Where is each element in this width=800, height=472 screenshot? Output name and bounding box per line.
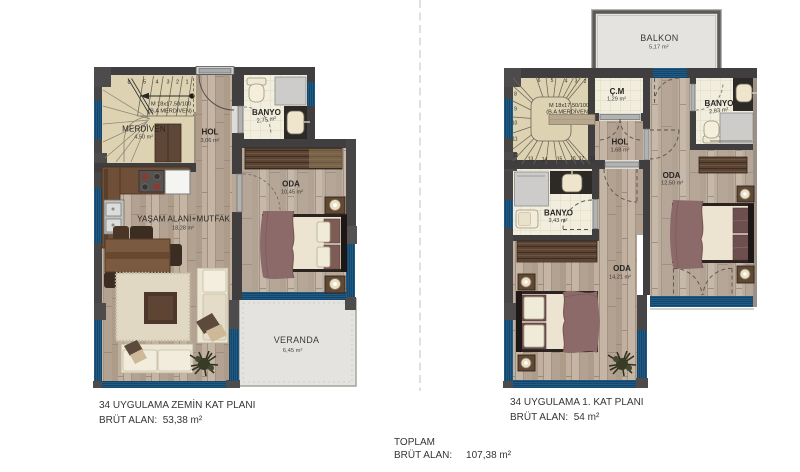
svg-text:HOL: HOL [612, 138, 629, 147]
svg-text:15: 15 [557, 157, 563, 163]
svg-text:(B.A MERDİVEN): (B.A MERDİVEN) [148, 108, 192, 115]
svg-text:8: 8 [514, 92, 517, 98]
svg-text:17: 17 [579, 156, 585, 162]
svg-text:BALKON: BALKON [640, 33, 678, 43]
svg-text:5: 5 [551, 78, 554, 84]
svg-text:3: 3 [166, 80, 169, 86]
svg-text:HOL: HOL [202, 128, 219, 137]
svg-text:ODA: ODA [282, 180, 300, 189]
svg-text:5,17 m²: 5,17 m² [649, 45, 669, 51]
svg-text:(B.A MERDİVEN): (B.A MERDİVEN) [546, 109, 590, 116]
svg-text:10: 10 [512, 121, 518, 127]
svg-text:9: 9 [514, 107, 517, 113]
svg-text:MERDİVEN: MERDİVEN [122, 125, 166, 134]
svg-text:ODA: ODA [613, 264, 631, 273]
svg-text:1: 1 [185, 80, 188, 86]
svg-text:14: 14 [542, 157, 548, 163]
svg-text:BANYO: BANYO [544, 209, 573, 218]
svg-text:2: 2 [584, 79, 587, 85]
svg-text:14,21 m²: 14,21 m² [609, 275, 631, 281]
svg-text:6: 6 [127, 80, 130, 86]
svg-text:YAŞAM ALANI+MUTFAK: YAŞAM ALANI+MUTFAK [137, 215, 230, 224]
svg-text:ODA: ODA [663, 171, 681, 180]
svg-text:4: 4 [565, 79, 568, 85]
svg-text:4: 4 [155, 80, 158, 86]
svg-text:5: 5 [143, 80, 146, 86]
svg-text:6: 6 [538, 78, 541, 84]
svg-text:M 18x17,50/100: M 18x17,50/100 [549, 103, 589, 109]
svg-text:1,29 m²: 1,29 m² [607, 97, 626, 103]
svg-text:M 18x17,50/100: M 18x17,50/100 [151, 102, 191, 108]
svg-text:10,45 m²: 10,45 m² [281, 190, 303, 196]
svg-text:3,06 m²: 3,06 m² [201, 138, 220, 144]
svg-text:16: 16 [570, 156, 576, 162]
svg-text:1,68 m²: 1,68 m² [611, 148, 630, 154]
svg-text:6,45 m²: 6,45 m² [283, 348, 303, 354]
svg-text:2: 2 [176, 80, 179, 86]
svg-text:4,50 m²: 4,50 m² [134, 135, 153, 141]
svg-text:18: 18 [590, 157, 596, 163]
svg-text:12,50 m²: 12,50 m² [661, 181, 683, 187]
svg-text:VERANDA: VERANDA [274, 335, 320, 345]
svg-text:Ç.M: Ç.M [610, 87, 625, 96]
svg-text:11: 11 [512, 137, 517, 143]
svg-text:18,28 m²: 18,28 m² [172, 225, 194, 231]
svg-text:3: 3 [575, 79, 578, 85]
svg-text:12: 12 [513, 153, 519, 159]
svg-text:13: 13 [528, 157, 534, 163]
